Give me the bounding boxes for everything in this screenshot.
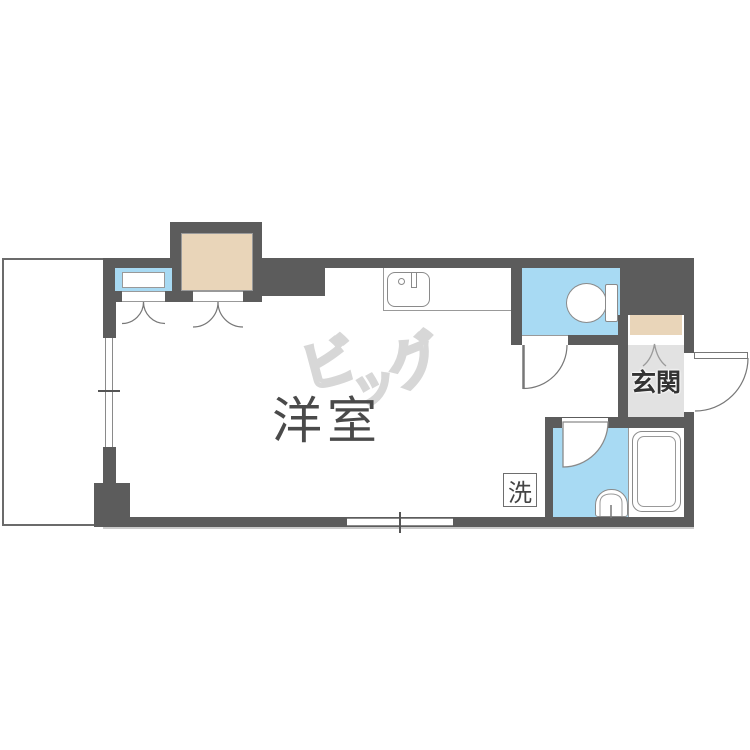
floorplan-canvas: 洗 ビ ッ グ 洋室 玄関 (0, 0, 750, 750)
entrance-label: 玄関 (629, 363, 683, 399)
room-label: 洋室 (272, 381, 382, 453)
